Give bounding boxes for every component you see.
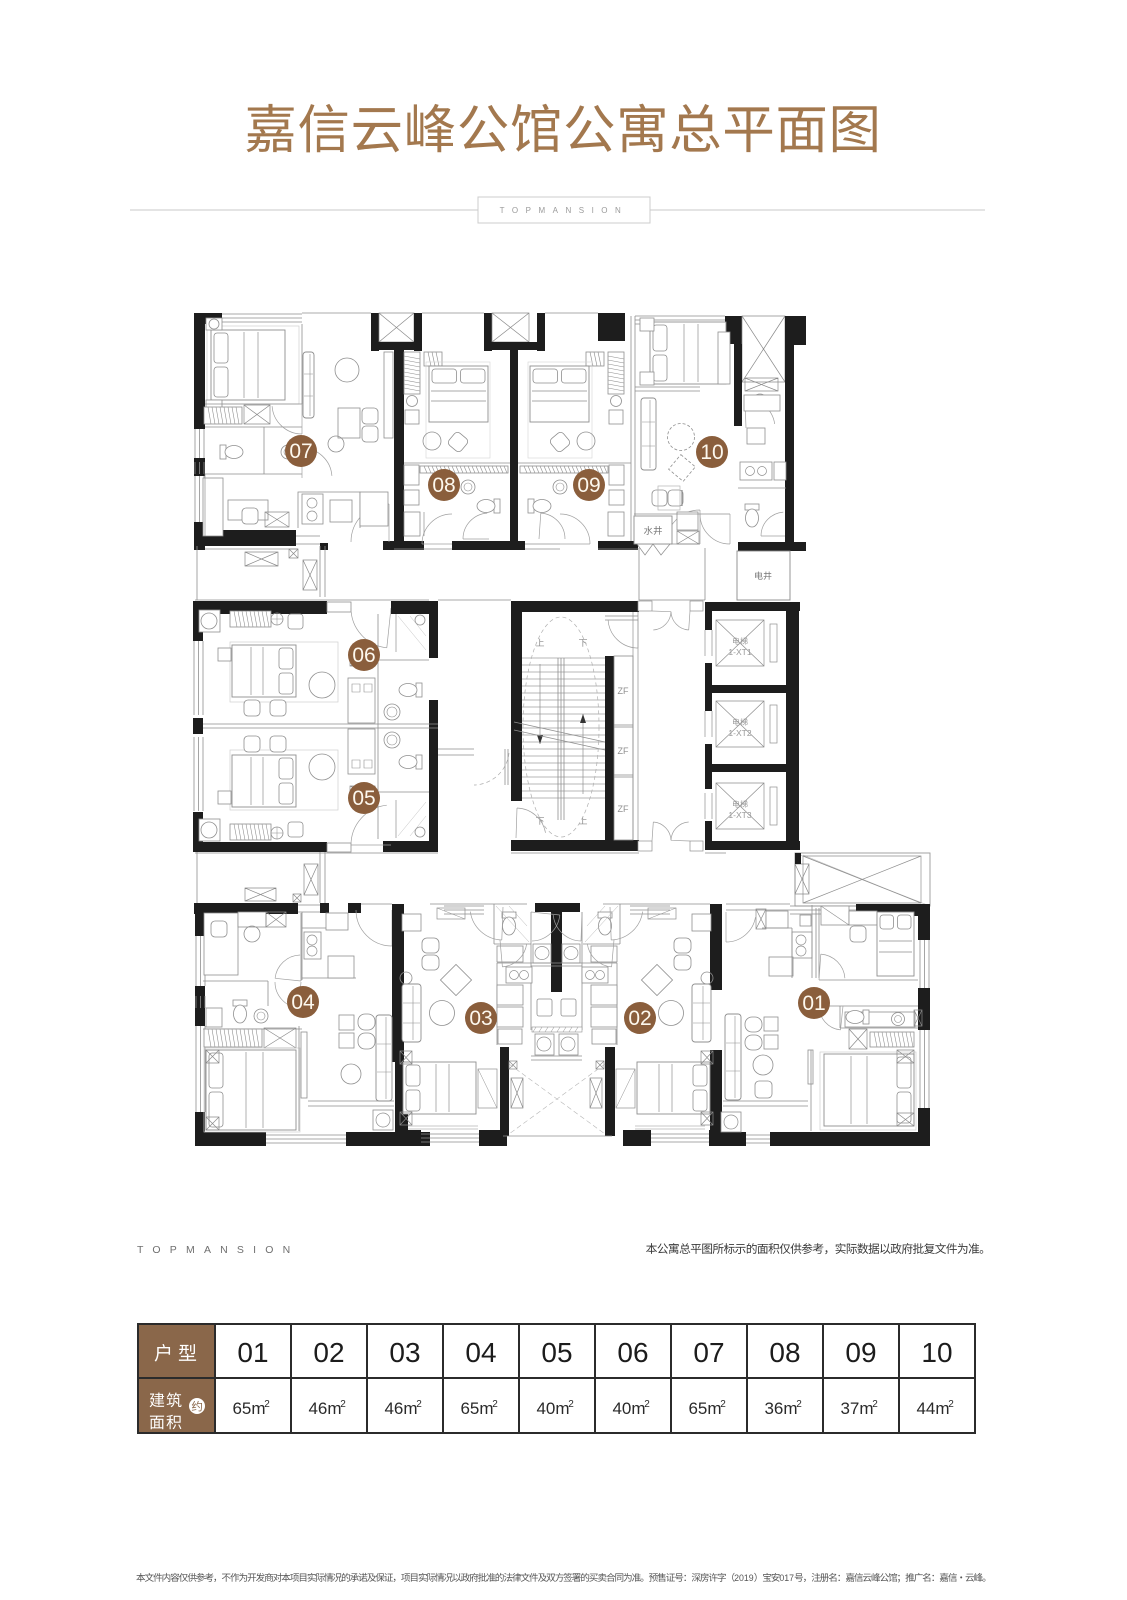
svg-text:2: 2: [492, 1399, 498, 1410]
svg-text:2: 2: [796, 1399, 802, 1410]
svg-text:03: 03: [389, 1337, 420, 1368]
svg-text:1-XT2: 1-XT2: [728, 728, 751, 738]
svg-text:65m: 65m: [232, 1399, 265, 1418]
svg-text:65m: 65m: [460, 1399, 493, 1418]
svg-text:017: 017: [779, 1573, 794, 1583]
svg-text:10: 10: [700, 441, 723, 464]
svg-text:40m: 40m: [612, 1399, 645, 1418]
svg-text:2: 2: [720, 1399, 726, 1410]
svg-text:08: 08: [769, 1337, 800, 1368]
svg-text:40m: 40m: [536, 1399, 569, 1418]
svg-text:06: 06: [617, 1337, 648, 1368]
svg-text:2: 2: [872, 1399, 878, 1410]
svg-text:07: 07: [693, 1337, 724, 1368]
svg-text:36m: 36m: [764, 1399, 797, 1418]
svg-text:2: 2: [948, 1399, 954, 1410]
svg-text:TOPMANSION: TOPMANSION: [137, 1244, 299, 1256]
svg-text:10: 10: [921, 1337, 952, 1368]
svg-text:09: 09: [577, 474, 600, 497]
svg-text:02: 02: [628, 1007, 651, 1030]
svg-text:06: 06: [352, 644, 375, 667]
svg-text:44m: 44m: [916, 1399, 949, 1418]
svg-text:2: 2: [644, 1399, 650, 1410]
svg-text:04: 04: [291, 991, 315, 1014]
svg-text:1-XT3: 1-XT3: [728, 810, 751, 820]
svg-text:ZF: ZF: [618, 746, 629, 756]
svg-text:02: 02: [313, 1337, 344, 1368]
svg-text:01: 01: [237, 1337, 268, 1368]
svg-text:03: 03: [469, 1007, 492, 1030]
svg-text:09: 09: [845, 1337, 876, 1368]
svg-text:2: 2: [340, 1399, 346, 1410]
svg-text:05: 05: [352, 787, 375, 810]
svg-text:2019: 2019: [734, 1573, 754, 1583]
svg-text:07: 07: [289, 440, 312, 463]
svg-text:04: 04: [465, 1337, 496, 1368]
svg-text:1-XT1: 1-XT1: [728, 647, 751, 657]
svg-text:08: 08: [432, 474, 455, 497]
svg-text:ZF: ZF: [618, 686, 629, 696]
svg-text:46m: 46m: [384, 1399, 417, 1418]
svg-text:05: 05: [541, 1337, 572, 1368]
svg-text:37m: 37m: [840, 1399, 873, 1418]
svg-text:01: 01: [802, 992, 825, 1015]
svg-text:ZF: ZF: [618, 804, 629, 814]
svg-text:2: 2: [416, 1399, 422, 1410]
svg-text:2: 2: [568, 1399, 574, 1410]
svg-text:2: 2: [264, 1399, 270, 1410]
svg-text:65m: 65m: [688, 1399, 721, 1418]
svg-text:TOPMANSION: TOPMANSION: [500, 206, 629, 215]
svg-text:46m: 46m: [308, 1399, 341, 1418]
